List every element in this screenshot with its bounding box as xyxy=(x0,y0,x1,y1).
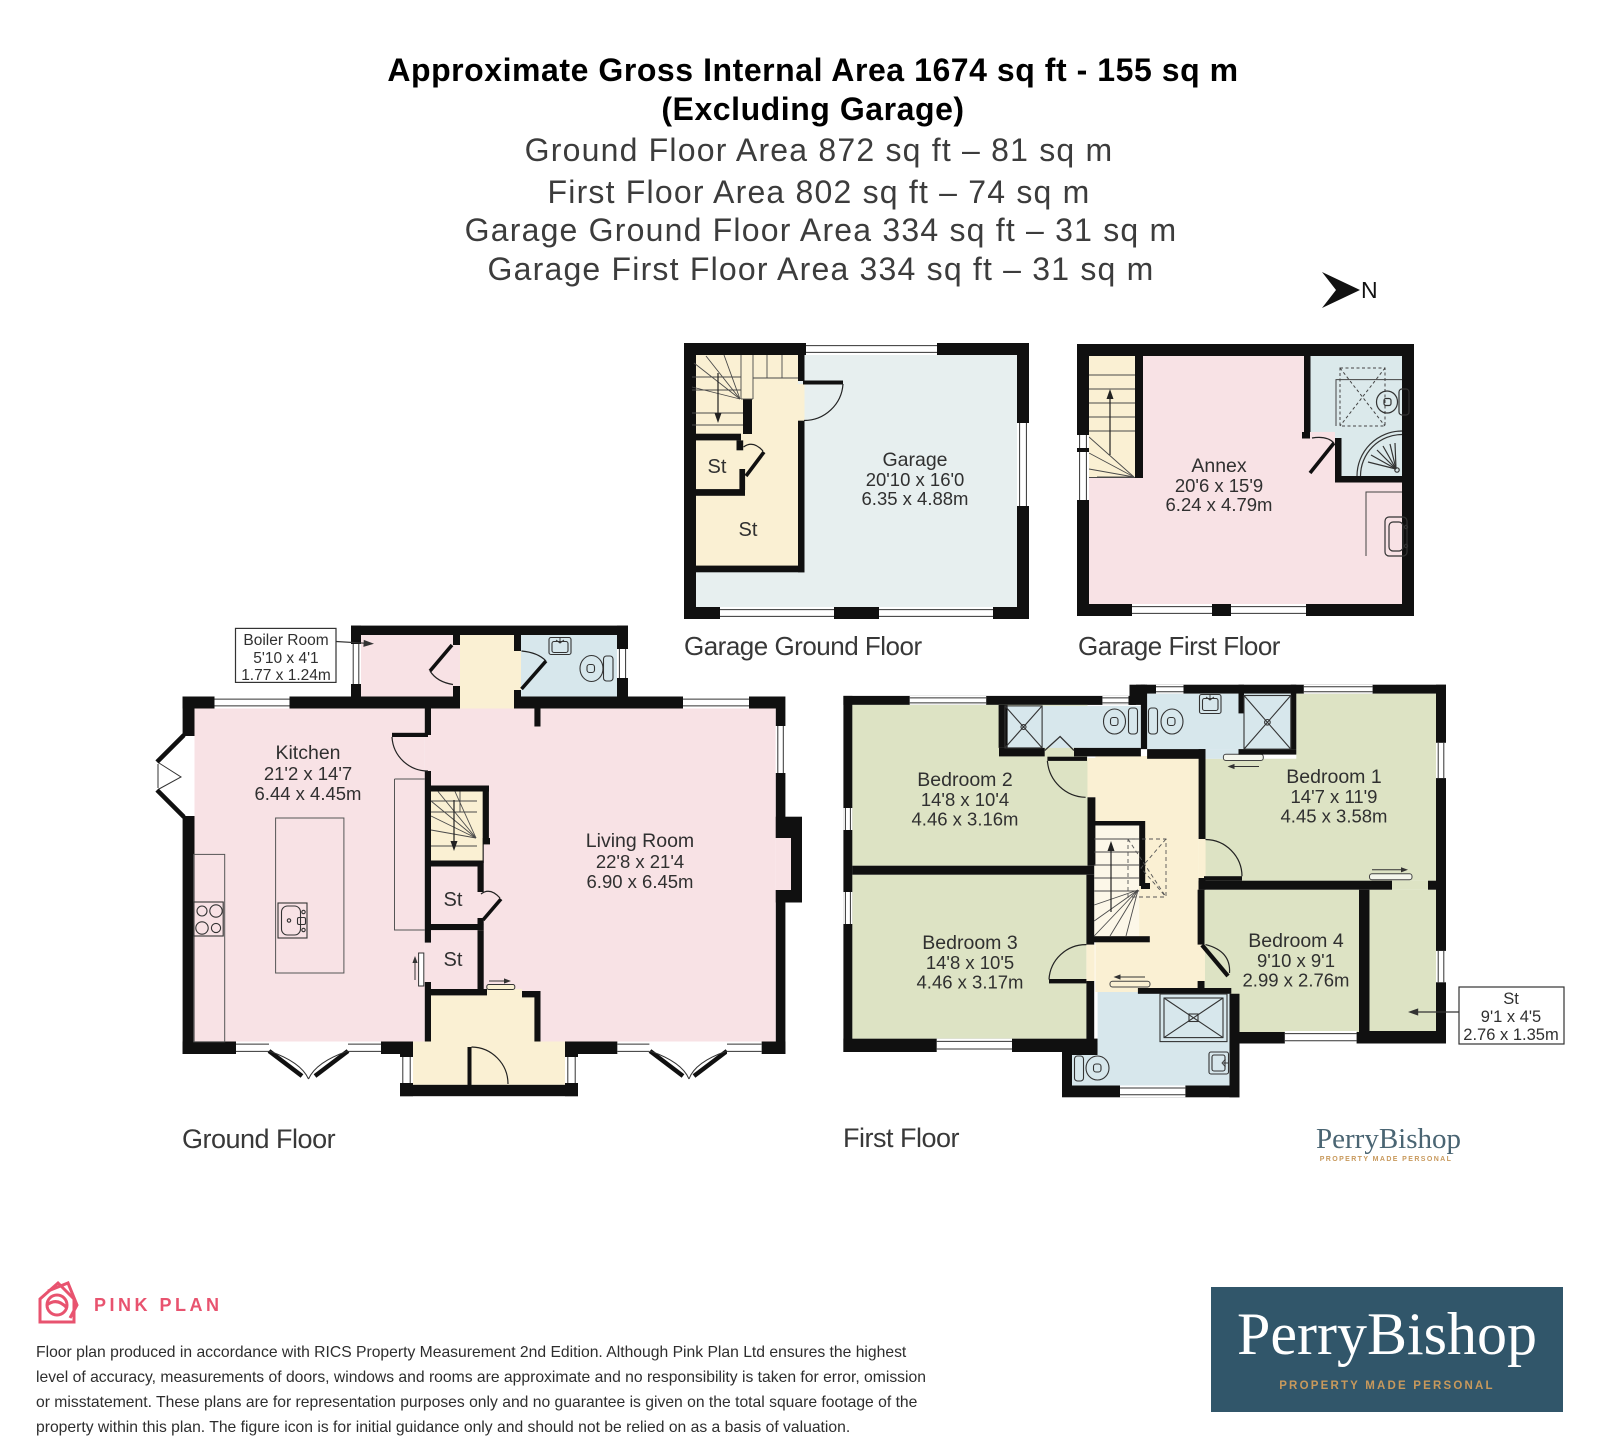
svg-text:14'7 x 11'9: 14'7 x 11'9 xyxy=(1291,786,1378,807)
svg-text:Living Room: Living Room xyxy=(586,830,694,852)
svg-text:20'10 x 16'0: 20'10 x 16'0 xyxy=(866,469,965,490)
svg-text:PINK PLAN: PINK PLAN xyxy=(94,1295,223,1315)
svg-text:N: N xyxy=(1361,277,1378,303)
svg-text:Bedroom 2: Bedroom 2 xyxy=(917,769,1012,791)
svg-text:14'8 x 10'5: 14'8 x 10'5 xyxy=(926,952,1014,973)
svg-text:PerryBishop: PerryBishop xyxy=(1237,1301,1537,1367)
svg-text:or misstatement. These plans a: or misstatement. These plans are for rep… xyxy=(36,1394,918,1411)
svg-text:6.24 x 4.79m: 6.24 x 4.79m xyxy=(1166,494,1273,515)
svg-text:9'1 x 4'5: 9'1 x 4'5 xyxy=(1481,1008,1541,1026)
svg-text:4.46 x 3.16m: 4.46 x 3.16m xyxy=(912,809,1019,830)
svg-text:5'10 x 4'1: 5'10 x 4'1 xyxy=(253,650,318,667)
svg-text:Bedroom 4: Bedroom 4 xyxy=(1248,930,1344,952)
svg-text:21'2 x 14'7: 21'2 x 14'7 xyxy=(264,763,352,784)
svg-text:First Floor Area 802 sq ft – 7: First Floor Area 802 sq ft – 74 sq m xyxy=(548,174,1091,210)
svg-text:6.90 x 6.45m: 6.90 x 6.45m xyxy=(587,871,694,892)
svg-text:property within this plan. The: property within this plan. The figure ic… xyxy=(36,1419,850,1436)
svg-text:2.76 x 1.35m: 2.76 x 1.35m xyxy=(1463,1026,1558,1044)
svg-text:4.45 x 3.58m: 4.45 x 3.58m xyxy=(1281,806,1388,827)
svg-text:Bedroom 1: Bedroom 1 xyxy=(1286,766,1381,788)
svg-text:St: St xyxy=(1503,990,1519,1008)
svg-text:4.46 x 3.17m: 4.46 x 3.17m xyxy=(917,972,1024,993)
svg-text:Garage First Floor: Garage First Floor xyxy=(1078,631,1281,661)
svg-text:PROPERTY MADE PERSONAL: PROPERTY MADE PERSONAL xyxy=(1320,1156,1453,1163)
svg-text:Garage First Floor Area 334 sq: Garage First Floor Area 334 sq ft – 31 s… xyxy=(488,251,1155,287)
svg-text:2.99 x 2.76m: 2.99 x 2.76m xyxy=(1243,970,1350,991)
svg-text:(Excluding Garage): (Excluding Garage) xyxy=(661,91,964,127)
svg-text:22'8 x 21'4: 22'8 x 21'4 xyxy=(596,851,684,872)
svg-text:St: St xyxy=(739,519,758,541)
svg-text:St: St xyxy=(708,456,727,478)
svg-text:PerryBishop: PerryBishop xyxy=(1316,1123,1461,1155)
svg-text:level of accuracy, measurement: level of accuracy, measurements of doors… xyxy=(36,1369,926,1386)
svg-text:14'8 x 10'4: 14'8 x 10'4 xyxy=(921,789,1009,810)
svg-text:First Floor: First Floor xyxy=(843,1123,960,1153)
svg-text:PROPERTY MADE PERSONAL: PROPERTY MADE PERSONAL xyxy=(1279,1380,1495,1392)
svg-text:Floor plan produced in accorda: Floor plan produced in accordance with R… xyxy=(36,1344,907,1361)
svg-text:9'10 x 9'1: 9'10 x 9'1 xyxy=(1257,950,1335,971)
svg-text:1.77 x 1.24m: 1.77 x 1.24m xyxy=(241,667,331,684)
svg-text:Ground Floor Area 872 sq ft –: Ground Floor Area 872 sq ft – 81 sq m xyxy=(525,132,1114,168)
svg-text:Annex: Annex xyxy=(1191,455,1247,477)
svg-text:Kitchen: Kitchen xyxy=(275,742,340,764)
svg-text:Ground Floor: Ground Floor xyxy=(182,1124,336,1154)
svg-text:Garage Ground Floor: Garage Ground Floor xyxy=(684,631,922,661)
svg-text:Bedroom 3: Bedroom 3 xyxy=(922,932,1017,954)
svg-text:Boiler Room: Boiler Room xyxy=(243,632,328,649)
svg-text:St: St xyxy=(444,889,463,911)
svg-text:6.44 x 4.45m: 6.44 x 4.45m xyxy=(255,783,362,804)
svg-text:6.35 x 4.88m: 6.35 x 4.88m xyxy=(862,488,969,509)
svg-text:Approximate Gross Internal Are: Approximate Gross Internal Area 1674 sq … xyxy=(387,52,1238,88)
svg-text:Garage: Garage xyxy=(882,449,947,471)
svg-text:Garage Ground Floor Area 334 s: Garage Ground Floor Area 334 sq ft – 31 … xyxy=(465,212,1178,248)
svg-text:20'6 x 15'9: 20'6 x 15'9 xyxy=(1175,475,1263,496)
svg-text:St: St xyxy=(444,949,463,971)
